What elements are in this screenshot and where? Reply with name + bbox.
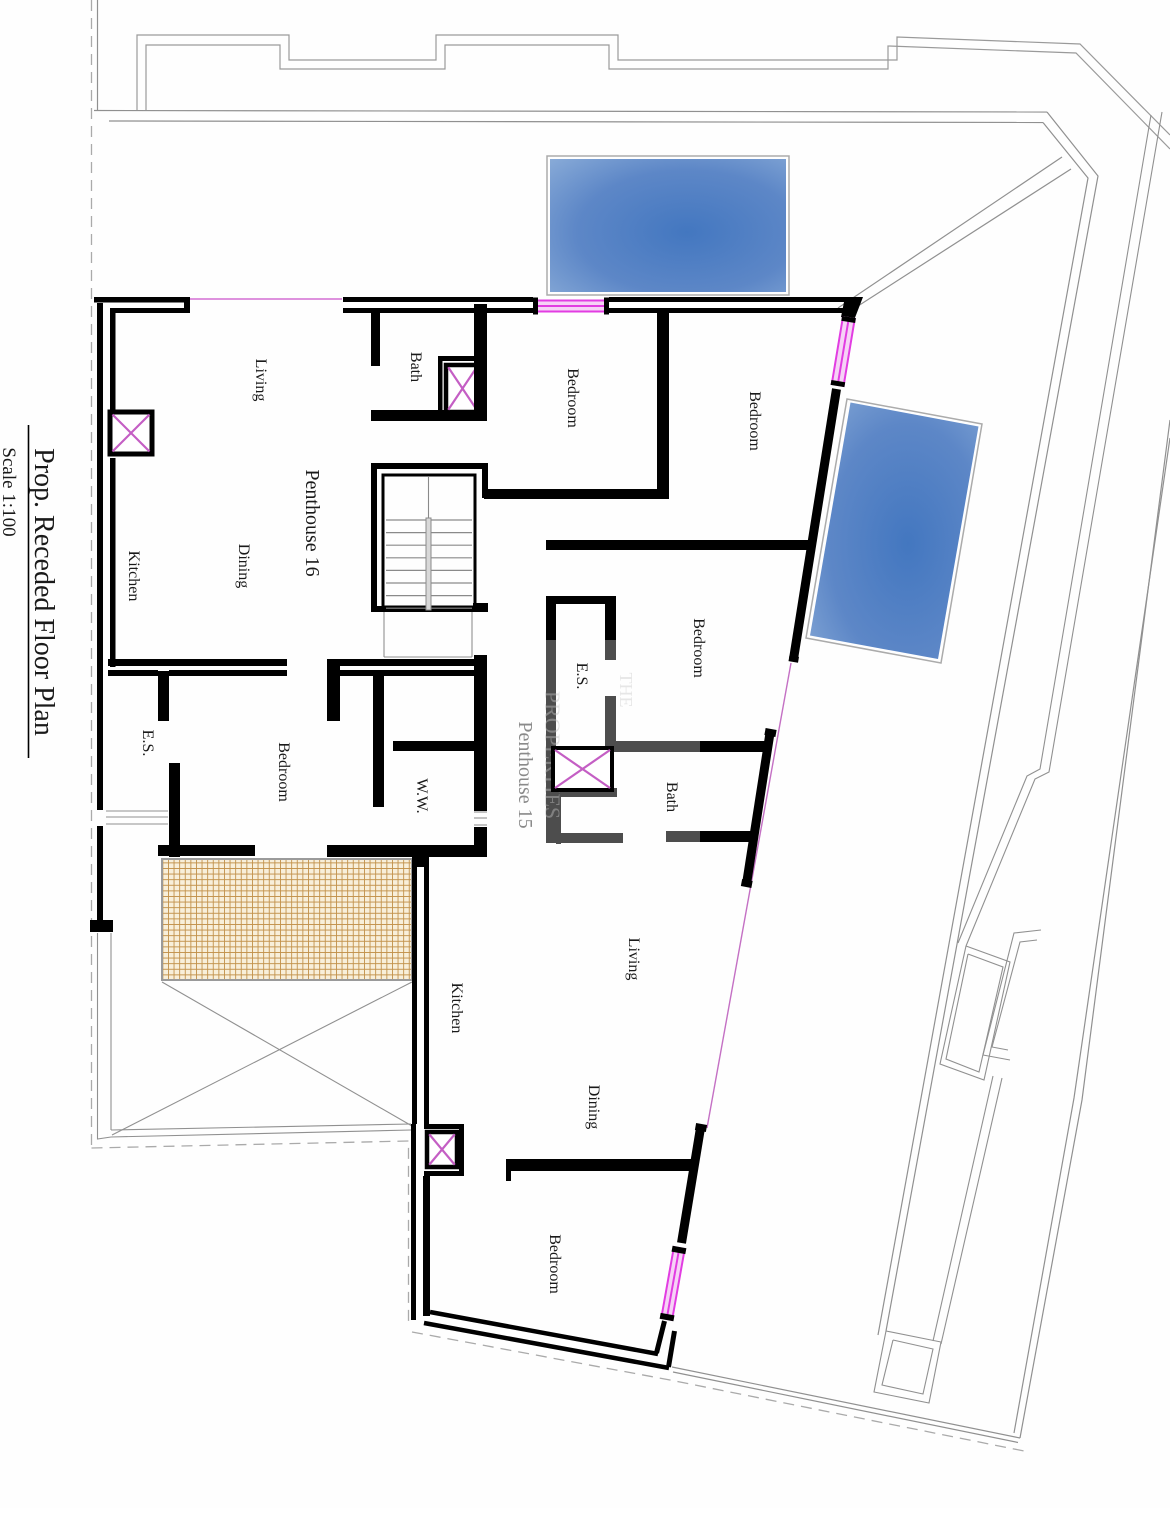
- svg-text:Bedroom: Bedroom: [275, 742, 292, 802]
- svg-text:Bedroom: Bedroom: [690, 618, 707, 678]
- svg-text:Living: Living: [625, 938, 642, 981]
- svg-text:Bath: Bath: [407, 352, 424, 382]
- svg-text:Bedroom: Bedroom: [546, 1234, 563, 1294]
- svg-text:Scale 1:100: Scale 1:100: [0, 447, 19, 536]
- svg-text:Kitchen: Kitchen: [448, 983, 465, 1034]
- svg-text:E.S.: E.S.: [139, 730, 156, 757]
- svg-text:Bedroom: Bedroom: [564, 368, 581, 428]
- svg-text:Living: Living: [252, 359, 269, 402]
- svg-text:Bedroom: Bedroom: [746, 391, 763, 451]
- svg-text:Dining: Dining: [235, 544, 252, 588]
- svg-text:Prop. Receded Floor Plan: Prop. Receded Floor Plan: [28, 448, 59, 736]
- svg-text:Penthouse 15: Penthouse 15: [514, 721, 536, 828]
- svg-text:Bath: Bath: [663, 782, 680, 812]
- svg-text:Penthouse 16: Penthouse 16: [301, 469, 323, 576]
- svg-text:Dining: Dining: [585, 1085, 602, 1129]
- svg-text:E.S.: E.S.: [573, 663, 590, 690]
- svg-text:THE: THE: [616, 673, 636, 708]
- svg-text:Kitchen: Kitchen: [125, 551, 142, 602]
- svg-text:W.W.: W.W.: [413, 778, 430, 813]
